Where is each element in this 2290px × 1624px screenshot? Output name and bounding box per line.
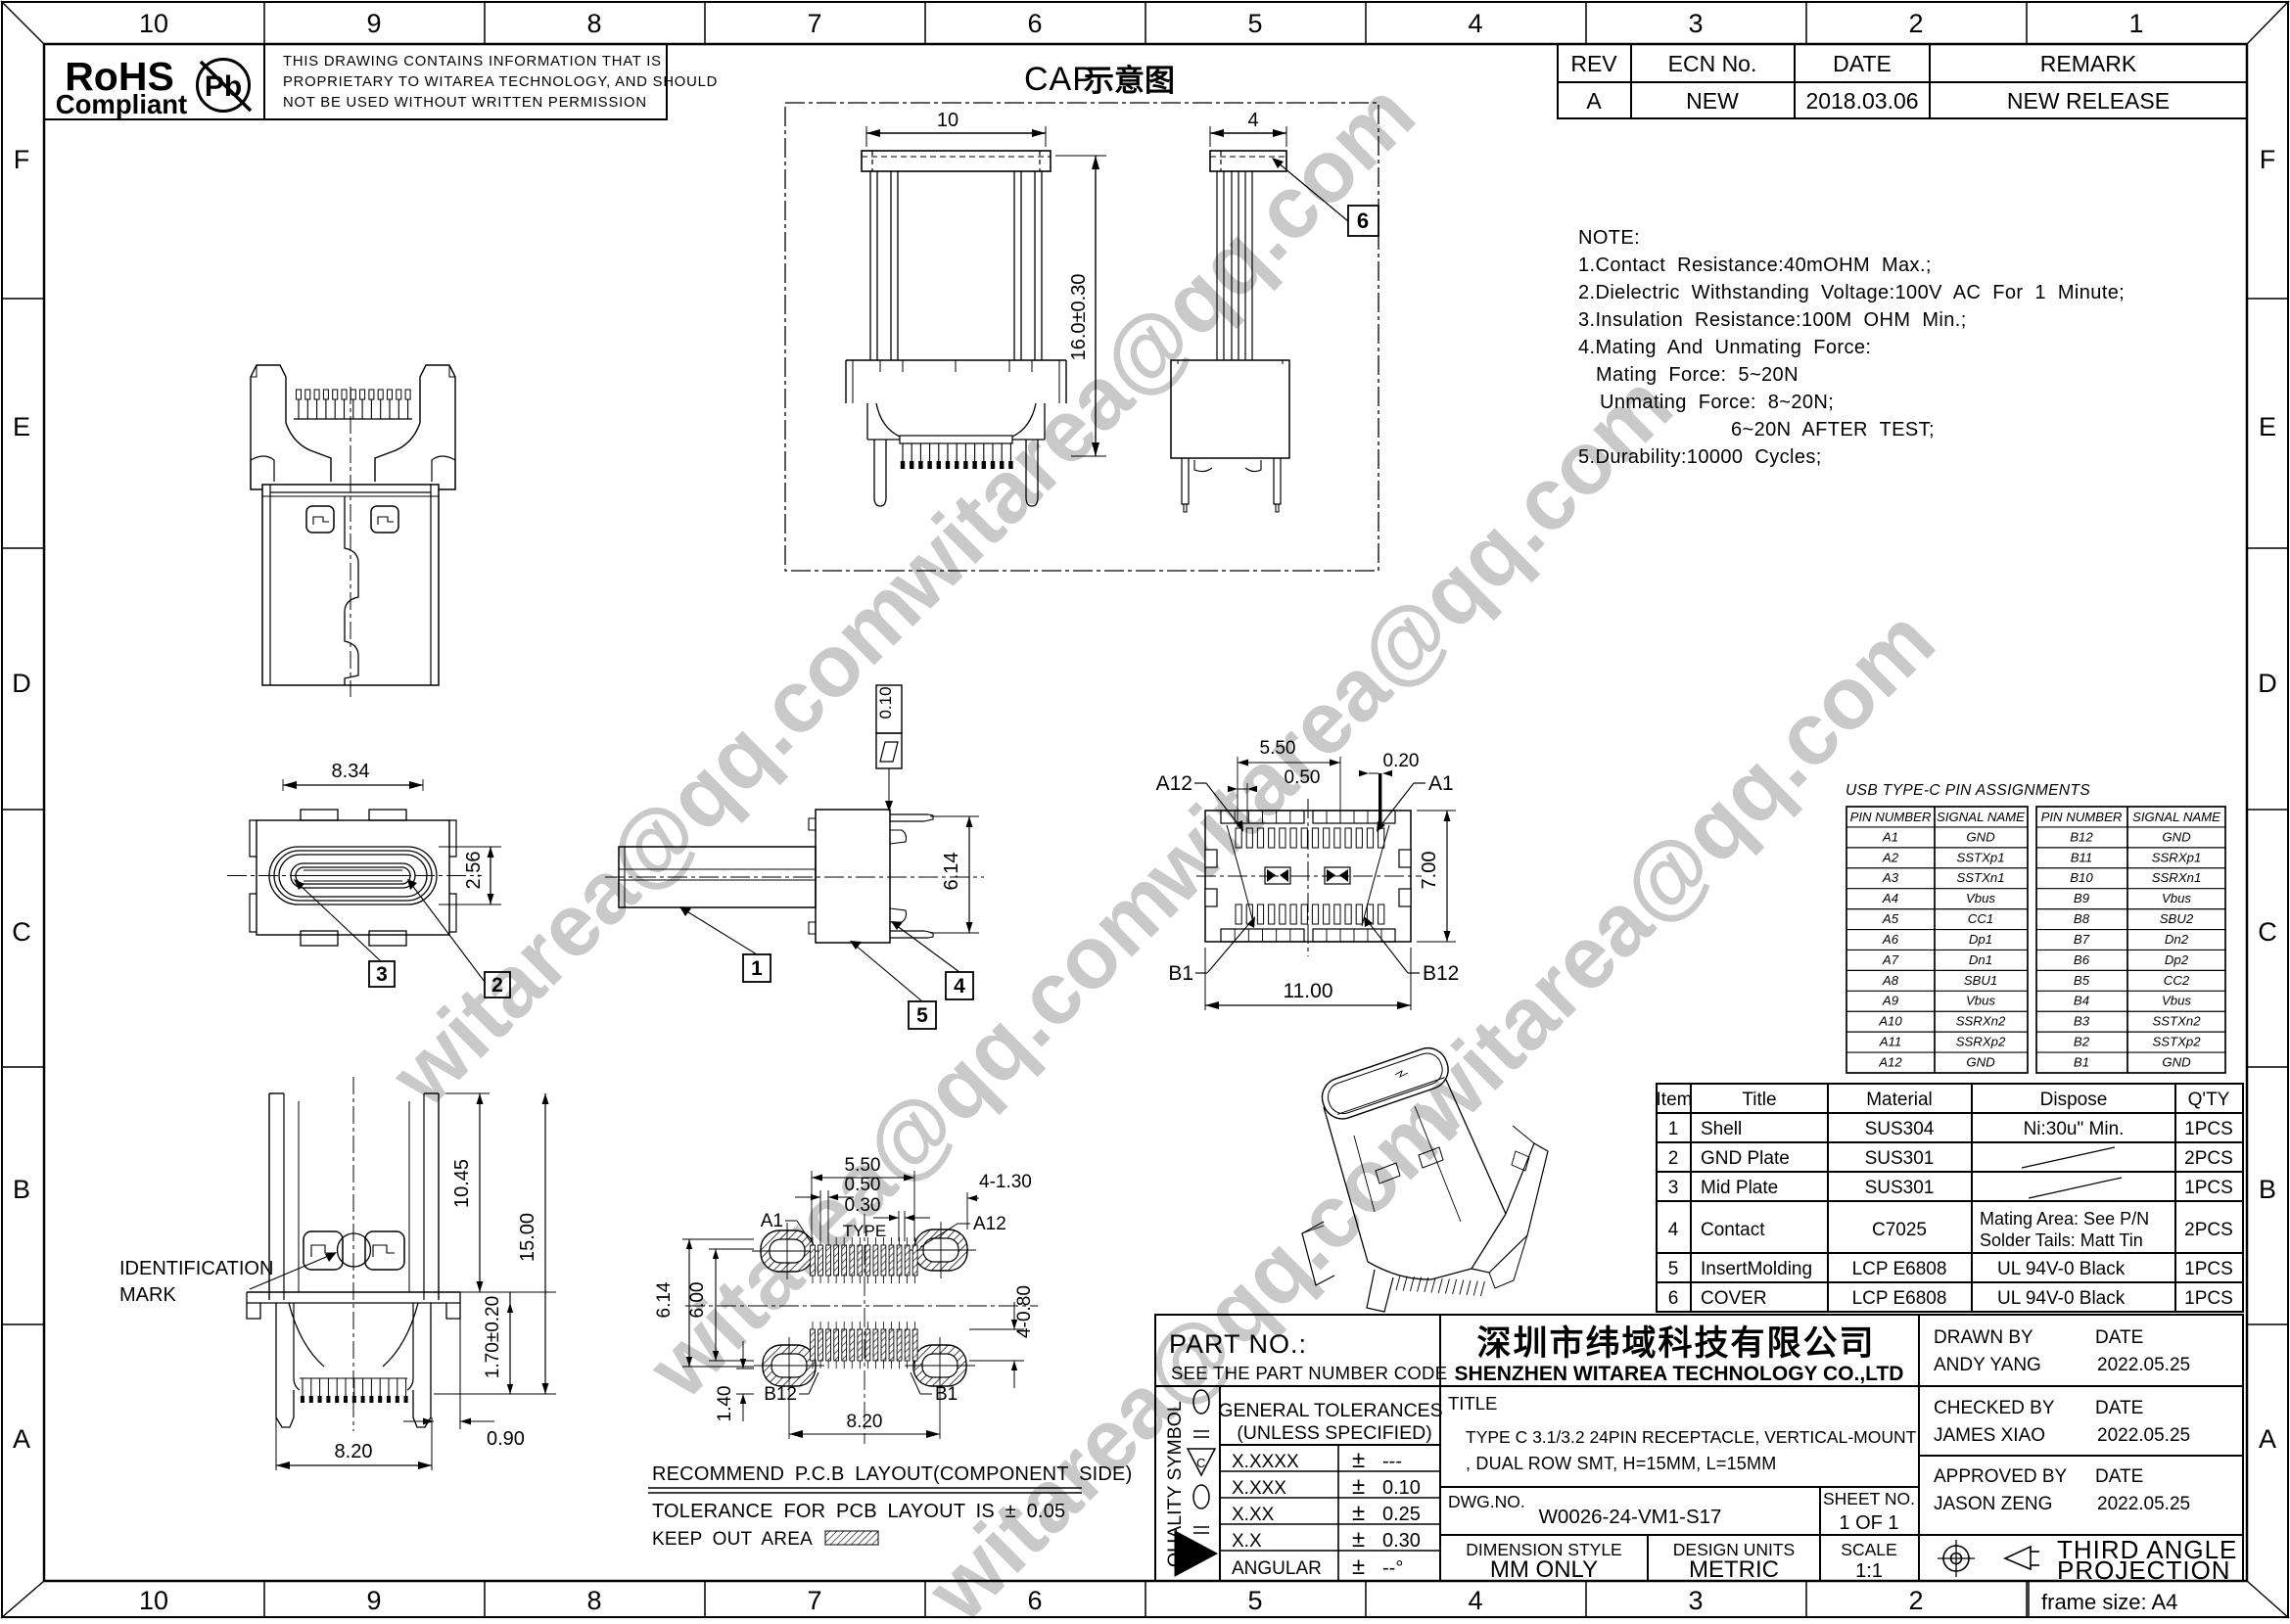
- svg-text:REMARK: REMARK: [2040, 51, 2137, 76]
- svg-text:SSRXn1: SSRXn1: [2152, 870, 2202, 885]
- svg-text:0.50: 0.50: [845, 1175, 881, 1195]
- svg-text:B: B: [13, 1175, 30, 1204]
- svg-text:B12: B12: [764, 1384, 797, 1405]
- svg-text:D: D: [2258, 669, 2277, 698]
- svg-text:Title: Title: [1742, 1090, 1776, 1110]
- svg-text:Material: Material: [1866, 1090, 1933, 1110]
- svg-text:CHECKED BY: CHECKED BY: [1934, 1398, 2055, 1418]
- svg-text:F: F: [2260, 145, 2276, 174]
- svg-text:6: 6: [1357, 209, 1369, 233]
- svg-text:(UNLESS SPECIFIED): (UNLESS SPECIFIED): [1237, 1422, 1431, 1444]
- svg-text:GND Plate: GND Plate: [1701, 1148, 1790, 1169]
- svg-text:示意图: 示意图: [1084, 64, 1175, 98]
- svg-text:REV: REV: [1570, 51, 1617, 76]
- svg-text:B3: B3: [2074, 1014, 2090, 1029]
- svg-text:5: 5: [1668, 1259, 1679, 1279]
- svg-text:1PCS: 1PCS: [2184, 1178, 2233, 1198]
- svg-text:LCP E6808: LCP E6808: [1852, 1259, 1947, 1279]
- svg-text:A1: A1: [761, 1211, 783, 1231]
- svg-text:10.45: 10.45: [451, 1159, 473, 1208]
- svg-text:Shell: Shell: [1701, 1119, 1742, 1139]
- svg-text:DWG.NO.: DWG.NO.: [1448, 1492, 1525, 1511]
- svg-text:Q'TY: Q'TY: [2188, 1090, 2230, 1110]
- svg-text:APPROVED BY: APPROVED BY: [1934, 1466, 2068, 1487]
- svg-text:15.00: 15.00: [517, 1213, 538, 1262]
- svg-text:GND: GND: [2162, 829, 2191, 844]
- svg-text:6~20N AFTER TEST;: 6~20N AFTER TEST;: [1731, 419, 1935, 441]
- svg-text:4: 4: [1668, 1220, 1679, 1240]
- svg-text:TITLE: TITLE: [1448, 1393, 1497, 1414]
- svg-text:NEW RELEASE: NEW RELEASE: [2007, 88, 2170, 114]
- svg-text:SSRXp2: SSRXp2: [1956, 1035, 2006, 1049]
- svg-text:PART NO.:: PART NO.:: [1169, 1329, 1307, 1359]
- svg-text:SSTXn2: SSTXn2: [2152, 1014, 2201, 1029]
- svg-text:16.0±0.30: 16.0±0.30: [1068, 274, 1090, 361]
- svg-text:5.50: 5.50: [845, 1155, 881, 1176]
- svg-text:Dp1: Dp1: [1969, 932, 1992, 947]
- svg-text:SSTXn1: SSTXn1: [1956, 870, 2004, 885]
- svg-text:GND: GND: [1966, 1055, 1995, 1070]
- svg-text:SHENZHEN WITAREA TECHNOLOGY CO: SHENZHEN WITAREA TECHNOLOGY CO.,LTD: [1455, 1363, 1904, 1385]
- svg-text:A2: A2: [1882, 850, 1899, 864]
- svg-text:0.50: 0.50: [1285, 767, 1321, 788]
- svg-text:10: 10: [139, 1586, 168, 1615]
- svg-text:USB TYPE-C PIN ASSIGNMENTS: USB TYPE-C PIN ASSIGNMENTS: [1846, 782, 2090, 799]
- svg-text:B8: B8: [2074, 911, 2090, 926]
- svg-text:0.30: 0.30: [1382, 1530, 1421, 1552]
- svg-text:A1: A1: [1428, 772, 1454, 795]
- svg-text:B4: B4: [2074, 994, 2089, 1008]
- svg-text:A: A: [1586, 88, 1602, 114]
- svg-text:Unmating Force: 8~20N;: Unmating Force: 8~20N;: [1600, 392, 1834, 413]
- svg-text:SSRXp1: SSRXp1: [2152, 850, 2202, 864]
- svg-text:A12: A12: [1156, 772, 1192, 795]
- svg-text:±: ±: [1352, 1447, 1365, 1473]
- svg-text:深圳市纬域科技有限公司: 深圳市纬域科技有限公司: [1476, 1324, 1875, 1363]
- svg-text:SEE THE PART NUMBER CODE: SEE THE PART NUMBER CODE: [1171, 1363, 1447, 1383]
- svg-text:5.Durability:10000 Cycles;: 5.Durability:10000 Cycles;: [1578, 446, 1822, 468]
- svg-text:W0026-24-VM1-S17: W0026-24-VM1-S17: [1539, 1506, 1722, 1528]
- svg-text:D: D: [12, 669, 31, 698]
- svg-text:TOLERANCE FOR PCB LAYOUT IS ±: TOLERANCE FOR PCB LAYOUT IS ± 0.05: [652, 1501, 1065, 1522]
- svg-text:2: 2: [1908, 9, 1923, 38]
- svg-text:B2: B2: [2074, 1035, 2090, 1049]
- svg-text:Dn1: Dn1: [1969, 952, 1992, 967]
- svg-text:±: ±: [1352, 1526, 1365, 1553]
- svg-text:1.70±0.20: 1.70±0.20: [483, 1296, 503, 1378]
- svg-text:±: ±: [1352, 1554, 1365, 1580]
- svg-text:DATE: DATE: [2095, 1398, 2143, 1418]
- svg-text:METRIC: METRIC: [1689, 1556, 1779, 1583]
- svg-text:X.X: X.X: [1232, 1531, 1262, 1552]
- svg-text:1: 1: [1668, 1119, 1679, 1139]
- svg-text:B: B: [2259, 1175, 2276, 1204]
- svg-text:Vbus: Vbus: [2162, 891, 2191, 905]
- svg-text:A: A: [13, 1424, 30, 1454]
- svg-text:B1: B1: [1168, 962, 1193, 985]
- svg-text:1: 1: [751, 957, 763, 980]
- svg-text:Solder Tails: Matt Tin: Solder Tails: Matt Tin: [1980, 1230, 2143, 1250]
- svg-text:Vbus: Vbus: [2162, 994, 2191, 1008]
- svg-text:A9: A9: [1882, 994, 1899, 1008]
- svg-text:B9: B9: [2074, 891, 2090, 905]
- svg-text:2018.03.06: 2018.03.06: [1805, 88, 1918, 114]
- svg-text:Compliant: Compliant: [56, 89, 187, 119]
- svg-text:SUS301: SUS301: [1865, 1148, 1935, 1169]
- svg-text:10: 10: [937, 110, 958, 131]
- svg-text:A10: A10: [1878, 1014, 1902, 1029]
- svg-text:GENERAL TOLERANCES: GENERAL TOLERANCES: [1218, 1400, 1442, 1421]
- svg-text:SUS301: SUS301: [1865, 1178, 1935, 1198]
- svg-text:8: 8: [586, 9, 601, 38]
- svg-text:Vbus: Vbus: [1966, 994, 1995, 1008]
- svg-text:SSTXp1: SSTXp1: [1956, 850, 2004, 864]
- svg-text:---: ---: [1382, 1451, 1402, 1472]
- svg-text:2022.05.25: 2022.05.25: [2097, 1425, 2190, 1446]
- svg-text:B1: B1: [2074, 1055, 2089, 1070]
- svg-text:6.14: 6.14: [941, 853, 962, 891]
- svg-text:X.XXXX: X.XXXX: [1232, 1452, 1299, 1472]
- svg-text:B12: B12: [2070, 829, 2093, 844]
- svg-text:--°: --°: [1382, 1557, 1403, 1579]
- svg-text:2: 2: [491, 974, 503, 997]
- svg-text:5: 5: [1247, 1586, 1262, 1615]
- svg-text:11.00: 11.00: [1284, 980, 1333, 1002]
- svg-text:JAMES XIAO: JAMES XIAO: [1934, 1425, 2045, 1446]
- svg-text:2PCS: 2PCS: [2184, 1220, 2233, 1240]
- svg-text:1:1: 1:1: [1855, 1560, 1883, 1582]
- svg-text:Contact: Contact: [1701, 1220, 1765, 1240]
- svg-text:8: 8: [586, 1586, 601, 1615]
- svg-text:7.00: 7.00: [1419, 852, 1440, 890]
- svg-text:TYPE C 3.1/3.2 24PIN RECEPTACL: TYPE C 3.1/3.2 24PIN RECEPTACLE, VERTICA…: [1466, 1427, 1917, 1447]
- svg-text:4-1.30: 4-1.30: [979, 1172, 1032, 1192]
- svg-text:4: 4: [1247, 110, 1258, 131]
- svg-text:E: E: [2259, 412, 2276, 441]
- svg-text:NOTE:: NOTE:: [1578, 227, 1640, 249]
- svg-text:PIN NUMBER: PIN NUMBER: [2041, 810, 2123, 824]
- svg-text:SHEET NO.: SHEET NO.: [1823, 1489, 1915, 1508]
- svg-text:±: ±: [1352, 1473, 1365, 1500]
- svg-text:2.Dielectric Withstanding Volt: 2.Dielectric Withstanding Voltage:100V A…: [1578, 282, 2125, 303]
- svg-text:C: C: [2258, 917, 2277, 947]
- svg-text:2.56: 2.56: [463, 852, 485, 890]
- svg-text:C: C: [12, 917, 31, 947]
- svg-text:GND: GND: [1966, 829, 1995, 844]
- svg-text:4.Mating And Unmating Force:: 4.Mating And Unmating Force:: [1578, 337, 1871, 358]
- svg-text:B11: B11: [2071, 850, 2093, 864]
- svg-text:CC2: CC2: [2164, 973, 2190, 988]
- svg-text:1 OF 1: 1 OF 1: [1839, 1512, 1898, 1534]
- svg-text:ECN No.: ECN No.: [1668, 51, 1757, 76]
- svg-text:E: E: [13, 412, 30, 441]
- svg-text:0.10: 0.10: [876, 686, 895, 719]
- svg-text:0.25: 0.25: [1382, 1504, 1421, 1525]
- svg-text:UL 94V-0 Black: UL 94V-0 Black: [1997, 1259, 2126, 1279]
- svg-text:DATE: DATE: [1833, 51, 1892, 76]
- svg-text:CC1: CC1: [1968, 911, 1993, 926]
- svg-text:A12: A12: [1878, 1055, 1902, 1070]
- svg-text:SBU2: SBU2: [2160, 911, 2194, 926]
- svg-text:0.30: 0.30: [845, 1195, 881, 1216]
- svg-text:ANGULAR: ANGULAR: [1232, 1558, 1322, 1579]
- svg-text:PROPRIETARY TO WITAREA TECHNOL: PROPRIETARY TO WITAREA TECHNOLOGY, AND S…: [283, 74, 718, 90]
- svg-text:X.XXX: X.XXX: [1232, 1478, 1286, 1499]
- svg-text:0.20: 0.20: [1383, 751, 1420, 771]
- svg-text:NEW: NEW: [1686, 88, 1739, 114]
- svg-text:7: 7: [807, 9, 821, 38]
- svg-text:frame size: A4: frame size: A4: [2041, 1590, 2177, 1614]
- svg-text:3: 3: [1668, 1178, 1679, 1198]
- svg-text:6: 6: [1027, 9, 1042, 38]
- svg-text:4: 4: [1468, 1586, 1482, 1615]
- svg-text:6: 6: [1027, 1586, 1042, 1615]
- svg-text:B12: B12: [1423, 962, 1459, 985]
- svg-text:X.XX: X.XX: [1232, 1505, 1275, 1525]
- svg-text:2: 2: [1908, 1586, 1923, 1615]
- svg-text:A1: A1: [1882, 829, 1898, 844]
- svg-text:A: A: [2259, 1424, 2276, 1454]
- svg-text:7: 7: [807, 1586, 821, 1615]
- svg-text:A3: A3: [1882, 870, 1899, 885]
- svg-text:C: C: [1196, 1456, 1205, 1470]
- svg-text:8.34: 8.34: [332, 761, 370, 782]
- svg-text:1.40: 1.40: [715, 1386, 735, 1422]
- svg-text:Mating Force: 5~20N: Mating Force: 5~20N: [1596, 364, 1799, 386]
- svg-text:C7025: C7025: [1872, 1220, 1927, 1240]
- svg-text:A7: A7: [1882, 952, 1899, 967]
- svg-text:Item: Item: [1657, 1090, 1693, 1110]
- svg-text:ANDY YANG: ANDY YANG: [1934, 1355, 2041, 1375]
- svg-text:SBU1: SBU1: [1964, 973, 1997, 988]
- svg-text:A12: A12: [973, 1214, 1006, 1234]
- svg-text:SSRXn2: SSRXn2: [1956, 1014, 2006, 1029]
- svg-text:RECOMMEND P.C.B LAYOUT(COMPONE: RECOMMEND P.C.B LAYOUT(COMPONENT SIDE): [652, 1463, 1132, 1485]
- svg-text:, DUAL ROW SMT, H=15MM, L=15MM: , DUAL ROW SMT, H=15MM, L=15MM: [1466, 1454, 1776, 1473]
- svg-text:MARK: MARK: [119, 1284, 176, 1306]
- svg-text:COVER: COVER: [1701, 1288, 1767, 1309]
- svg-text:LCP E6808: LCP E6808: [1852, 1288, 1947, 1309]
- svg-text:A6: A6: [1882, 932, 1899, 947]
- svg-text:Ni:30u" Min.: Ni:30u" Min.: [2024, 1119, 2125, 1139]
- svg-text:4: 4: [954, 975, 965, 998]
- svg-text:Dp2: Dp2: [2165, 952, 2189, 967]
- svg-text:A8: A8: [1882, 973, 1899, 988]
- svg-text:A5: A5: [1882, 911, 1899, 926]
- svg-text:B5: B5: [2074, 973, 2090, 988]
- svg-text:DATE: DATE: [2095, 1466, 2143, 1487]
- svg-text:GND: GND: [2162, 1055, 2191, 1070]
- svg-text:THIS DRAWING CONTAINS INFORMAT: THIS DRAWING CONTAINS INFORMATION THAT I…: [283, 54, 662, 70]
- svg-text:2PCS: 2PCS: [2184, 1148, 2233, 1169]
- svg-text:PROJECTION: PROJECTION: [2057, 1555, 2231, 1585]
- svg-text:Vbus: Vbus: [1966, 891, 1995, 905]
- svg-text:MM ONLY: MM ONLY: [1490, 1556, 1598, 1583]
- svg-text:4-0.80: 4-0.80: [1014, 1285, 1035, 1338]
- svg-text:0.90: 0.90: [487, 1428, 525, 1450]
- svg-text:4: 4: [1468, 9, 1482, 38]
- svg-text:A11: A11: [1879, 1035, 1902, 1049]
- svg-text:6.00: 6.00: [687, 1282, 708, 1319]
- svg-text:IDENTIFICATION: IDENTIFICATION: [119, 1258, 273, 1279]
- svg-text:5.50: 5.50: [1260, 738, 1296, 759]
- svg-text:2022.05.25: 2022.05.25: [2097, 1355, 2190, 1375]
- svg-text:1PCS: 1PCS: [2184, 1259, 2233, 1279]
- svg-text:F: F: [14, 145, 30, 174]
- svg-text:SIGNAL NAME: SIGNAL NAME: [2132, 810, 2220, 824]
- svg-text:B7: B7: [2074, 932, 2090, 947]
- svg-text:A4: A4: [1882, 891, 1898, 905]
- svg-text:8.20: 8.20: [335, 1441, 373, 1462]
- svg-text:InsertMolding: InsertMolding: [1701, 1259, 1812, 1279]
- svg-text:6.14: 6.14: [654, 1281, 675, 1318]
- svg-text:DATE: DATE: [2095, 1327, 2143, 1348]
- svg-text:B6: B6: [2074, 952, 2090, 967]
- svg-text:UL 94V-0 Black: UL 94V-0 Black: [1997, 1288, 2126, 1309]
- svg-text:9: 9: [366, 9, 381, 38]
- svg-text:B1: B1: [935, 1384, 958, 1405]
- svg-text:10: 10: [139, 9, 168, 38]
- svg-text:SSTXp2: SSTXp2: [2152, 1035, 2201, 1049]
- svg-text:9: 9: [366, 1586, 381, 1615]
- svg-text:5: 5: [916, 1004, 928, 1027]
- svg-text:NOT BE USED WITHOUT WRITTEN PE: NOT BE USED WITHOUT WRITTEN PERMISSION: [283, 95, 647, 111]
- svg-text:B10: B10: [2070, 870, 2093, 885]
- svg-text:SIGNAL NAME: SIGNAL NAME: [1937, 810, 2025, 824]
- svg-text:Mid Plate: Mid Plate: [1701, 1178, 1778, 1198]
- svg-text:3.Insulation Resistance:100M O: 3.Insulation Resistance:100M OHM Min.;: [1578, 309, 1967, 331]
- svg-text:DRAWN BY: DRAWN BY: [1934, 1327, 2033, 1348]
- svg-text:PIN NUMBER: PIN NUMBER: [1850, 810, 1932, 824]
- svg-text:JASON ZENG: JASON ZENG: [1934, 1494, 2052, 1514]
- svg-text:5: 5: [1247, 9, 1262, 38]
- svg-text:1: 1: [2128, 9, 2143, 38]
- svg-text:2022.05.25: 2022.05.25: [2097, 1494, 2190, 1514]
- svg-text:SUS304: SUS304: [1865, 1119, 1935, 1139]
- svg-text:0.10: 0.10: [1382, 1477, 1421, 1499]
- svg-text:2: 2: [1668, 1148, 1679, 1169]
- svg-text:Mating Area: See P/N: Mating Area: See P/N: [1980, 1209, 2149, 1229]
- svg-text:1.Contact Resistance:40mOHM Ma: 1.Contact Resistance:40mOHM Max.;: [1578, 255, 1932, 276]
- svg-text:3: 3: [376, 963, 388, 986]
- svg-text:3: 3: [1688, 1586, 1703, 1615]
- svg-text:Dispose: Dispose: [2040, 1090, 2108, 1110]
- svg-text:±: ±: [1352, 1500, 1365, 1526]
- svg-text:KEEP OUT AREA: KEEP OUT AREA: [652, 1529, 813, 1550]
- svg-text:1PCS: 1PCS: [2184, 1288, 2233, 1309]
- svg-text:1PCS: 1PCS: [2184, 1119, 2233, 1139]
- svg-text:SCALE: SCALE: [1841, 1540, 1896, 1559]
- svg-text:6: 6: [1668, 1288, 1679, 1309]
- svg-text:3: 3: [1688, 9, 1703, 38]
- svg-text:Dn2: Dn2: [2165, 932, 2189, 947]
